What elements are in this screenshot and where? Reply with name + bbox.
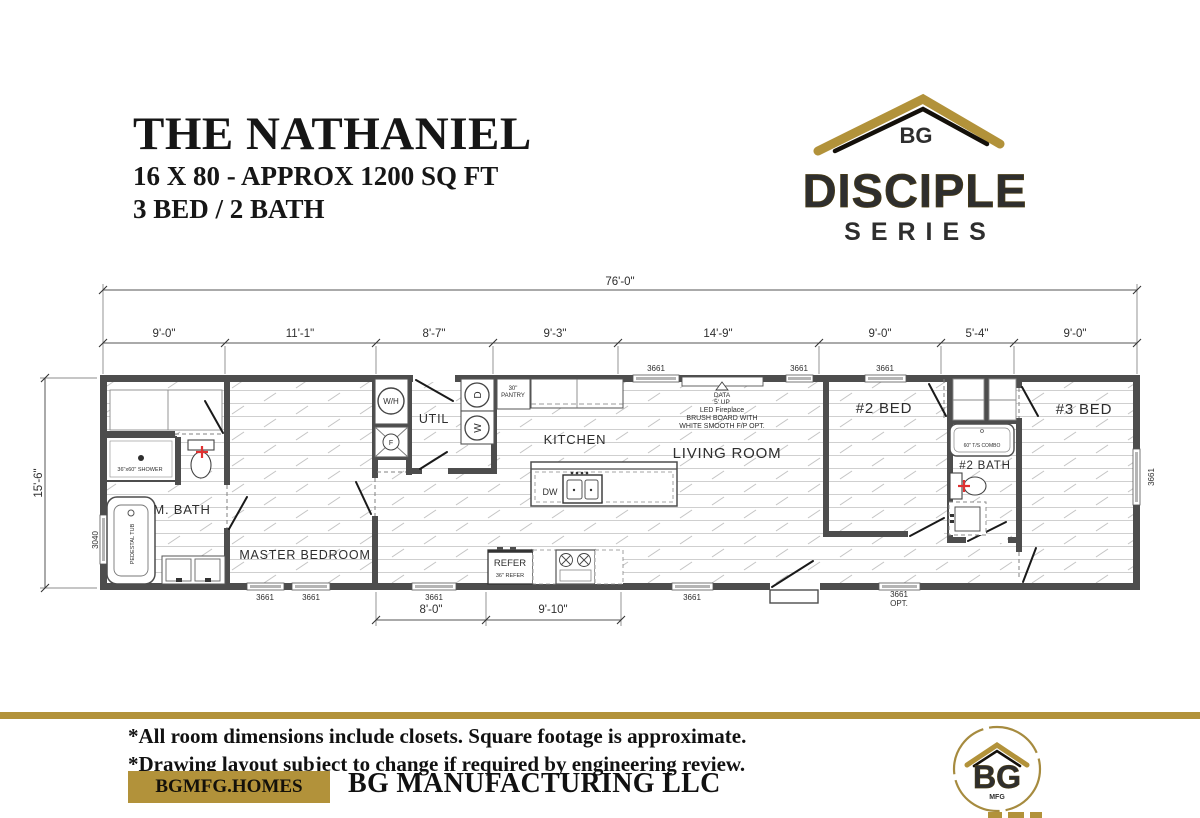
fireplace-note-4: BRUSH BOARD WITH: [686, 415, 757, 422]
dim-top-7: 5'-4": [966, 328, 989, 340]
model-specs: 16 X 80 - APPROX 1200 SQ FT: [133, 160, 532, 193]
dim-top-2: 11'-1": [286, 328, 314, 340]
window-label: 3661: [790, 364, 808, 373]
website-label: BGMFG.HOMES: [155, 776, 302, 798]
room-label-m-bath: M. BATH: [153, 502, 210, 517]
note-line-1: *All room dimensions include closets. Sq…: [128, 722, 746, 750]
window-label: 3661: [302, 593, 320, 602]
tub-combo-label: 60" T/S COMBO: [964, 443, 1001, 449]
window-label: 3661: [876, 364, 894, 373]
refer-size-label: 36" REFER: [496, 573, 524, 579]
room-label-bed3: #3 BED: [1056, 401, 1113, 418]
room-label-master-bedroom: MASTER BEDROOM: [239, 548, 370, 562]
shower-label: 36"x60" SHOWER: [117, 467, 162, 473]
dim-top-5: 14'-9": [703, 328, 732, 340]
series-name: DISCIPLE: [803, 164, 1028, 217]
dim-top-4: 9'-3": [544, 328, 567, 340]
pantry-label-1: 30": [509, 386, 518, 392]
series-word: SERIES: [844, 218, 996, 246]
window-label: 3661: [683, 593, 701, 602]
room-label-util: UTIL: [419, 412, 449, 426]
bed-bath-count: 3 BED / 2 BATH: [133, 193, 532, 226]
window-label-right: 3661: [1147, 468, 1156, 486]
furnace-label: F: [389, 440, 393, 447]
room-label-living-room: LIVING ROOM: [673, 445, 782, 462]
water-heater-label: W/H: [383, 397, 399, 406]
website-badge[interactable]: BGMFG.HOMES: [128, 771, 330, 803]
window-label-opt: 3661: [890, 590, 908, 599]
window-label: 3661: [425, 593, 443, 602]
bg-mfg-logo: BG MFG: [946, 725, 1050, 817]
dim-overall-depth: 15'-6": [33, 468, 45, 497]
dim-bottom-2: 9'-10": [538, 604, 567, 616]
dishwasher-label: DW: [543, 487, 558, 497]
window-label: 3661: [256, 593, 274, 602]
dim-overall-width: 76'-0": [605, 276, 634, 288]
fireplace-note-5: WHITE SMOOTH F/P OPT.: [679, 423, 764, 430]
page-title: THE NATHANIEL: [133, 108, 532, 160]
washer-label: W: [473, 423, 484, 433]
series-logo: BG DISCIPLE SERIES: [775, 85, 1065, 250]
dim-bottom-1: 8'-0": [420, 604, 443, 616]
fireplace-note-3: LED Fireplace: [700, 407, 744, 414]
fireplace-note-1: DATA: [714, 392, 731, 399]
window-label-left: 3040: [91, 531, 100, 549]
logo-bg-text: BG: [973, 759, 1021, 795]
cutoff-wordmark: [984, 812, 1094, 818]
pedestal-tub-label: PEDESTAL TUB: [130, 523, 136, 564]
room-label-bed2: #2 BED: [856, 400, 913, 417]
room-label-kitchen: KITCHEN: [544, 432, 607, 447]
window-label: 3661: [647, 364, 665, 373]
dim-top-3: 8'-7": [423, 328, 446, 340]
title-block: THE NATHANIEL 16 X 80 - APPROX 1200 SQ F…: [133, 108, 532, 226]
tub-shower-combo: [950, 424, 1014, 456]
company-name: BG MANUFACTURING LLC: [348, 768, 721, 800]
window-label-opt-suffix: OPT.: [890, 599, 908, 608]
dim-top-6: 9'-0": [869, 328, 892, 340]
brand-bg-text: BG: [900, 123, 933, 148]
refer-label: REFER: [494, 558, 526, 569]
pantry-label-2: PANTRY: [501, 393, 525, 399]
gold-divider-bar: [0, 712, 1200, 719]
dim-top-1: 9'-0": [153, 328, 176, 340]
logo-mfg-text: MFG: [989, 794, 1005, 801]
flyer-page: 36"x60" SHOWER PEDESTAL TUB W/H F: [0, 0, 1200, 818]
fireplace-note-2: 5' UP: [714, 399, 730, 406]
dryer-label: D: [473, 391, 484, 398]
dim-top-8: 9'-0": [1064, 328, 1087, 340]
room-label-bath2: #2 BATH: [959, 460, 1010, 472]
